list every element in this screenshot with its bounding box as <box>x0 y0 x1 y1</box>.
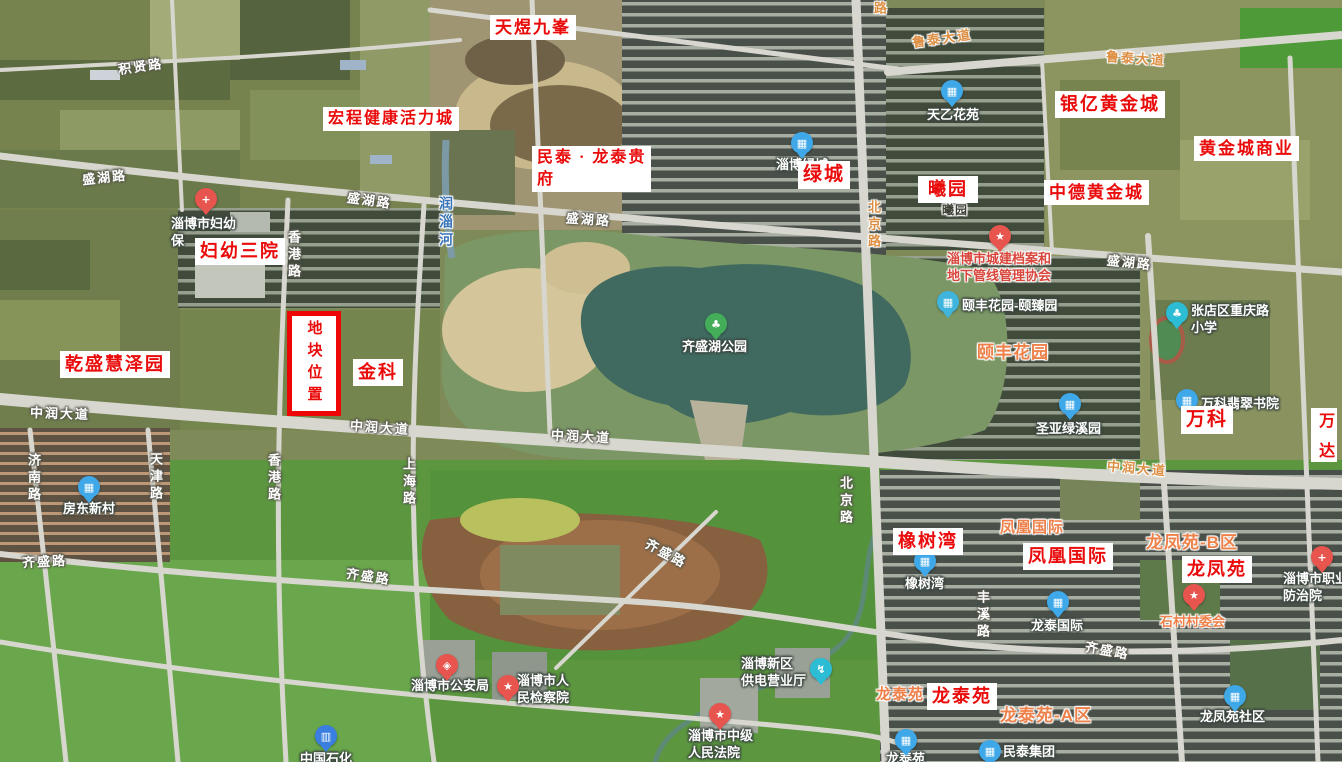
road-label-lutai-dadao-2: 鲁泰大道 <box>1105 46 1166 69</box>
annotation-yinyi-huangjincheng: 银亿黄金城 <box>1055 91 1165 118</box>
school-icon[interactable]: ♣ <box>1166 302 1188 324</box>
road-label-zhongrun-dadao-1: 中润大道 <box>30 402 91 423</box>
poi-zhongji-renmin-fayuan[interactable]: 淄博市中级人民法院 <box>688 728 753 761</box>
road-label-zhongrun-dadao-4: 中润大道 <box>1106 455 1167 479</box>
star-icon[interactable]: ★ <box>1183 584 1205 606</box>
poi-renmin-jianchayuan[interactable]: 淄博市人民检察院 <box>517 673 569 706</box>
building-icon[interactable]: ▦ <box>941 80 963 102</box>
building-icon[interactable]: ▦ <box>937 291 959 313</box>
poi-tianyi-huayuan[interactable]: 天乙花苑 <box>927 107 979 124</box>
plot-location-marker: 地块位置 <box>287 311 341 416</box>
road-label-jinan-lu: 济南路 <box>24 453 43 504</box>
satellite-map[interactable]: 天煜九峯宏程健康活力城民泰 · 龙泰贵府妇幼三院银亿黄金城黄金城商业曦园中德黄金… <box>0 0 1342 762</box>
annotation-xiangshuwan: 橡树湾 <box>893 528 963 555</box>
annotation-mintai-longtai-guifu: 民泰 · 龙泰贵府 <box>532 146 651 192</box>
road-label-shenghu-lu-3: 盛湖路 <box>565 207 611 229</box>
road-label-qisheng-lu-3: 齐盛路 <box>642 534 691 572</box>
hospital-icon[interactable]: + <box>195 188 217 210</box>
annotation-fenghuang-guoji: 凤凰国际 <box>1023 543 1113 570</box>
road-label-xianggang-lu-2: 香港路 <box>264 453 283 504</box>
annotation-zhongde-huangjincheng: 中德黄金城 <box>1044 180 1149 205</box>
annotation-wanke: 万科 <box>1181 406 1233 434</box>
building-icon[interactable]: ▦ <box>979 740 1001 762</box>
building-icon[interactable]: ▦ <box>1047 591 1069 613</box>
map-label-layer: 天煜九峯宏程健康活力城民泰 · 龙泰贵府妇幼三院银亿黄金城黄金城商业曦园中德黄金… <box>0 0 1342 762</box>
road-label-qisheng-lu-2: 齐盛路 <box>345 563 392 588</box>
poi-longtai-guoji[interactable]: 龙泰国际 <box>1031 618 1083 635</box>
road-label-shanghai-lu: 上海路 <box>399 457 418 508</box>
district-label-xiyuan-small: 曦园 <box>942 201 968 218</box>
road-label-shenghu-lu-2: 盛湖路 <box>346 187 393 212</box>
road-label-zhongrun-dadao-3: 中润大道 <box>551 424 612 446</box>
annotation-hongcheng-huoli-cheng: 宏程健康活力城 <box>323 107 459 131</box>
gas-icon[interactable]: ▥ <box>315 725 337 747</box>
road-label-jixian-lu: 积贤路 <box>117 53 164 78</box>
annotation-wanda: 万达 <box>1311 408 1337 462</box>
poi-yifeng-yizhenyuan[interactable]: 颐丰花园-颐臻园 <box>962 298 1057 315</box>
plot-location-label: 地块位置 <box>304 320 325 408</box>
poi-fangdong-xincun[interactable]: 房东新村 <box>63 501 115 518</box>
poi-mintai-jituan[interactable]: 民泰集团 <box>1003 744 1055 761</box>
park-icon[interactable]: ♣ <box>705 313 727 335</box>
poi-zhongguo-shihua[interactable]: 中国石化 <box>300 751 352 762</box>
police-icon[interactable]: ◈ <box>436 654 458 676</box>
star-icon[interactable]: ★ <box>989 225 1011 247</box>
district-label-longfengyuan-b: 龙凤苑-B区 <box>1146 528 1238 553</box>
poi-qishenghu-gongyuan[interactable]: 齐盛湖公园 <box>682 339 747 356</box>
district-label-longtaiyuan-a: 龙泰苑-A区 <box>1000 701 1092 726</box>
district-label-yifeng-huayuan: 颐丰花园 <box>977 338 1049 363</box>
annotation-lvcheng: 绿城 <box>798 161 850 189</box>
annotation-qiansheng-huizeyuan: 乾盛慧泽园 <box>60 351 170 378</box>
building-icon[interactable]: ▦ <box>78 476 100 498</box>
building-icon[interactable]: ▦ <box>1224 685 1246 707</box>
road-label-lu-fragment: 路 <box>870 1 889 18</box>
emblem-icon[interactable]: ★ <box>497 675 519 697</box>
poi-xiangshuwan[interactable]: 橡树湾 <box>905 576 944 593</box>
road-label-zhongrun-dadao-2: 中润大道 <box>349 415 410 438</box>
poi-chongqinglu-xiaoxue[interactable]: 张店区重庆路小学 <box>1191 303 1269 336</box>
emblem-icon[interactable]: ★ <box>709 703 731 725</box>
road-label-qisheng-lu-1: 齐盛路 <box>22 550 68 571</box>
poi-zhiye-fangzhiyuan[interactable]: 淄博市职业防治院 <box>1283 571 1342 604</box>
road-label-xianggang-lu-1: 香港路 <box>284 230 303 281</box>
building-icon[interactable]: ▦ <box>1059 393 1081 415</box>
annotation-jinke: 金科 <box>353 359 403 386</box>
road-label-beijing-lu-1: 北京路 <box>864 200 883 251</box>
building-icon[interactable]: ▦ <box>791 132 813 154</box>
road-label-tianjin-lu: 天津路 <box>146 452 165 503</box>
annotation-fuyou-sanyuan: 妇幼三院 <box>195 238 285 265</box>
poi-chengjian-dangan-xiehui[interactable]: 淄博市城建档案和地下管线管理协会 <box>947 251 1051 284</box>
road-label-qisheng-lu-4: 齐盛路 <box>1084 636 1132 663</box>
annotation-xiyuan: 曦园 <box>918 176 978 203</box>
poi-shengya-lvxiyuan[interactable]: 圣亚绿溪园 <box>1036 421 1101 438</box>
district-label-longtaiyuan: 龙泰苑 <box>876 683 924 704</box>
district-label-fenghuang-guoji: 凤凰国际 <box>1000 516 1064 537</box>
annotation-longfengyuan: 龙凤苑 <box>1182 556 1252 583</box>
road-label-shenghu-lu-4: 盛湖路 <box>1106 250 1153 274</box>
poi-shicun-cunweihui[interactable]: 石村村委会 <box>1160 614 1225 631</box>
road-label-runzi-he: 润淄河 <box>436 196 456 250</box>
road-label-beijing-lu-2: 北京路 <box>836 476 855 527</box>
annotation-longtaiyuan: 龙泰苑 <box>927 683 997 710</box>
road-label-fengxi-lu: 丰溪路 <box>973 590 992 641</box>
road-label-shenghu-lu-1: 盛湖路 <box>81 165 128 189</box>
hospital-icon[interactable]: + <box>1311 546 1333 568</box>
poi-gongdian-yingyeting[interactable]: 淄博新区供电营业厅 <box>741 656 806 689</box>
road-label-lutai-dadao-1: 鲁泰大道 <box>911 24 973 51</box>
annotation-huangjincheng-shangye: 黄金城商业 <box>1194 136 1299 161</box>
annotation-tianyu-jiufeng: 天煜九峯 <box>490 15 576 40</box>
building-icon[interactable]: ▦ <box>895 729 917 751</box>
power-icon[interactable]: ↯ <box>810 658 832 680</box>
